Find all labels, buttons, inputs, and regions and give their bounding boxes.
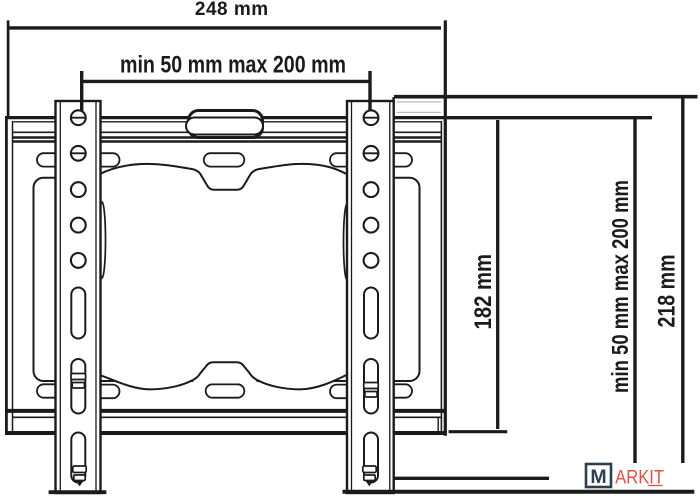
svg-text:M: M bbox=[590, 466, 606, 488]
svg-text:min 50 mm max 200 mm: min 50 mm max 200 mm bbox=[607, 180, 633, 393]
svg-text:ARKIT: ARKIT bbox=[615, 466, 664, 487]
svg-text:218 mm: 218 mm bbox=[654, 255, 681, 328]
svg-text:min 50 mm max 200 mm: min 50 mm max 200 mm bbox=[120, 51, 346, 78]
svg-text:182 mm: 182 mm bbox=[470, 254, 497, 330]
svg-text:248 mm: 248 mm bbox=[195, 0, 269, 20]
